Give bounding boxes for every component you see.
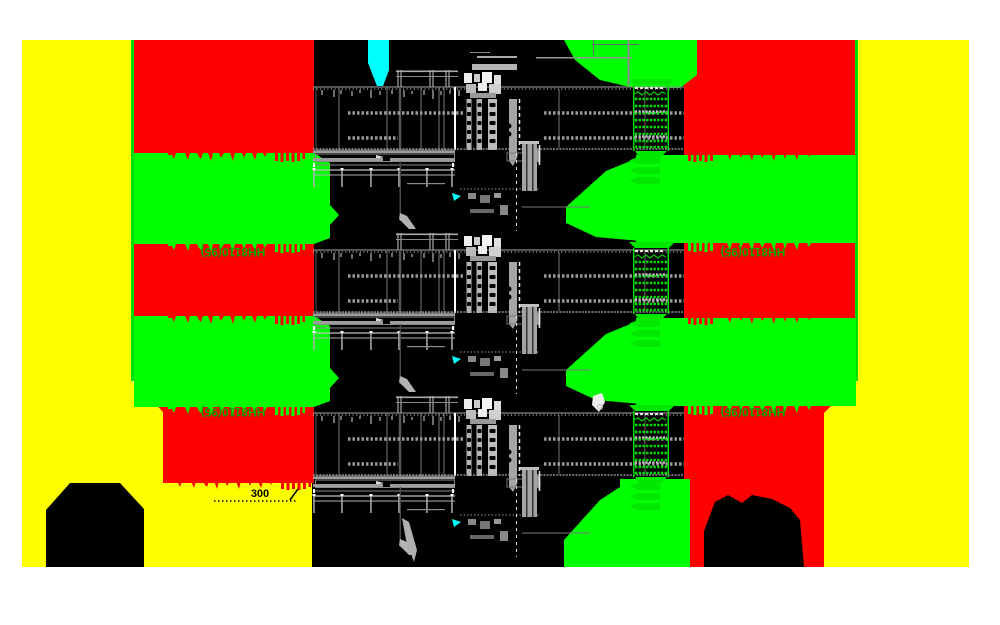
svg-text:HH8110(95): HH8110(95)	[201, 245, 266, 259]
svg-text:HH8110(95): HH8110(95)	[721, 245, 786, 259]
svg-text:HH8110(95): HH8110(95)	[201, 405, 266, 419]
svg-text:300: 300	[251, 488, 269, 500]
svg-text:HH8110(95): HH8110(95)	[721, 405, 786, 419]
